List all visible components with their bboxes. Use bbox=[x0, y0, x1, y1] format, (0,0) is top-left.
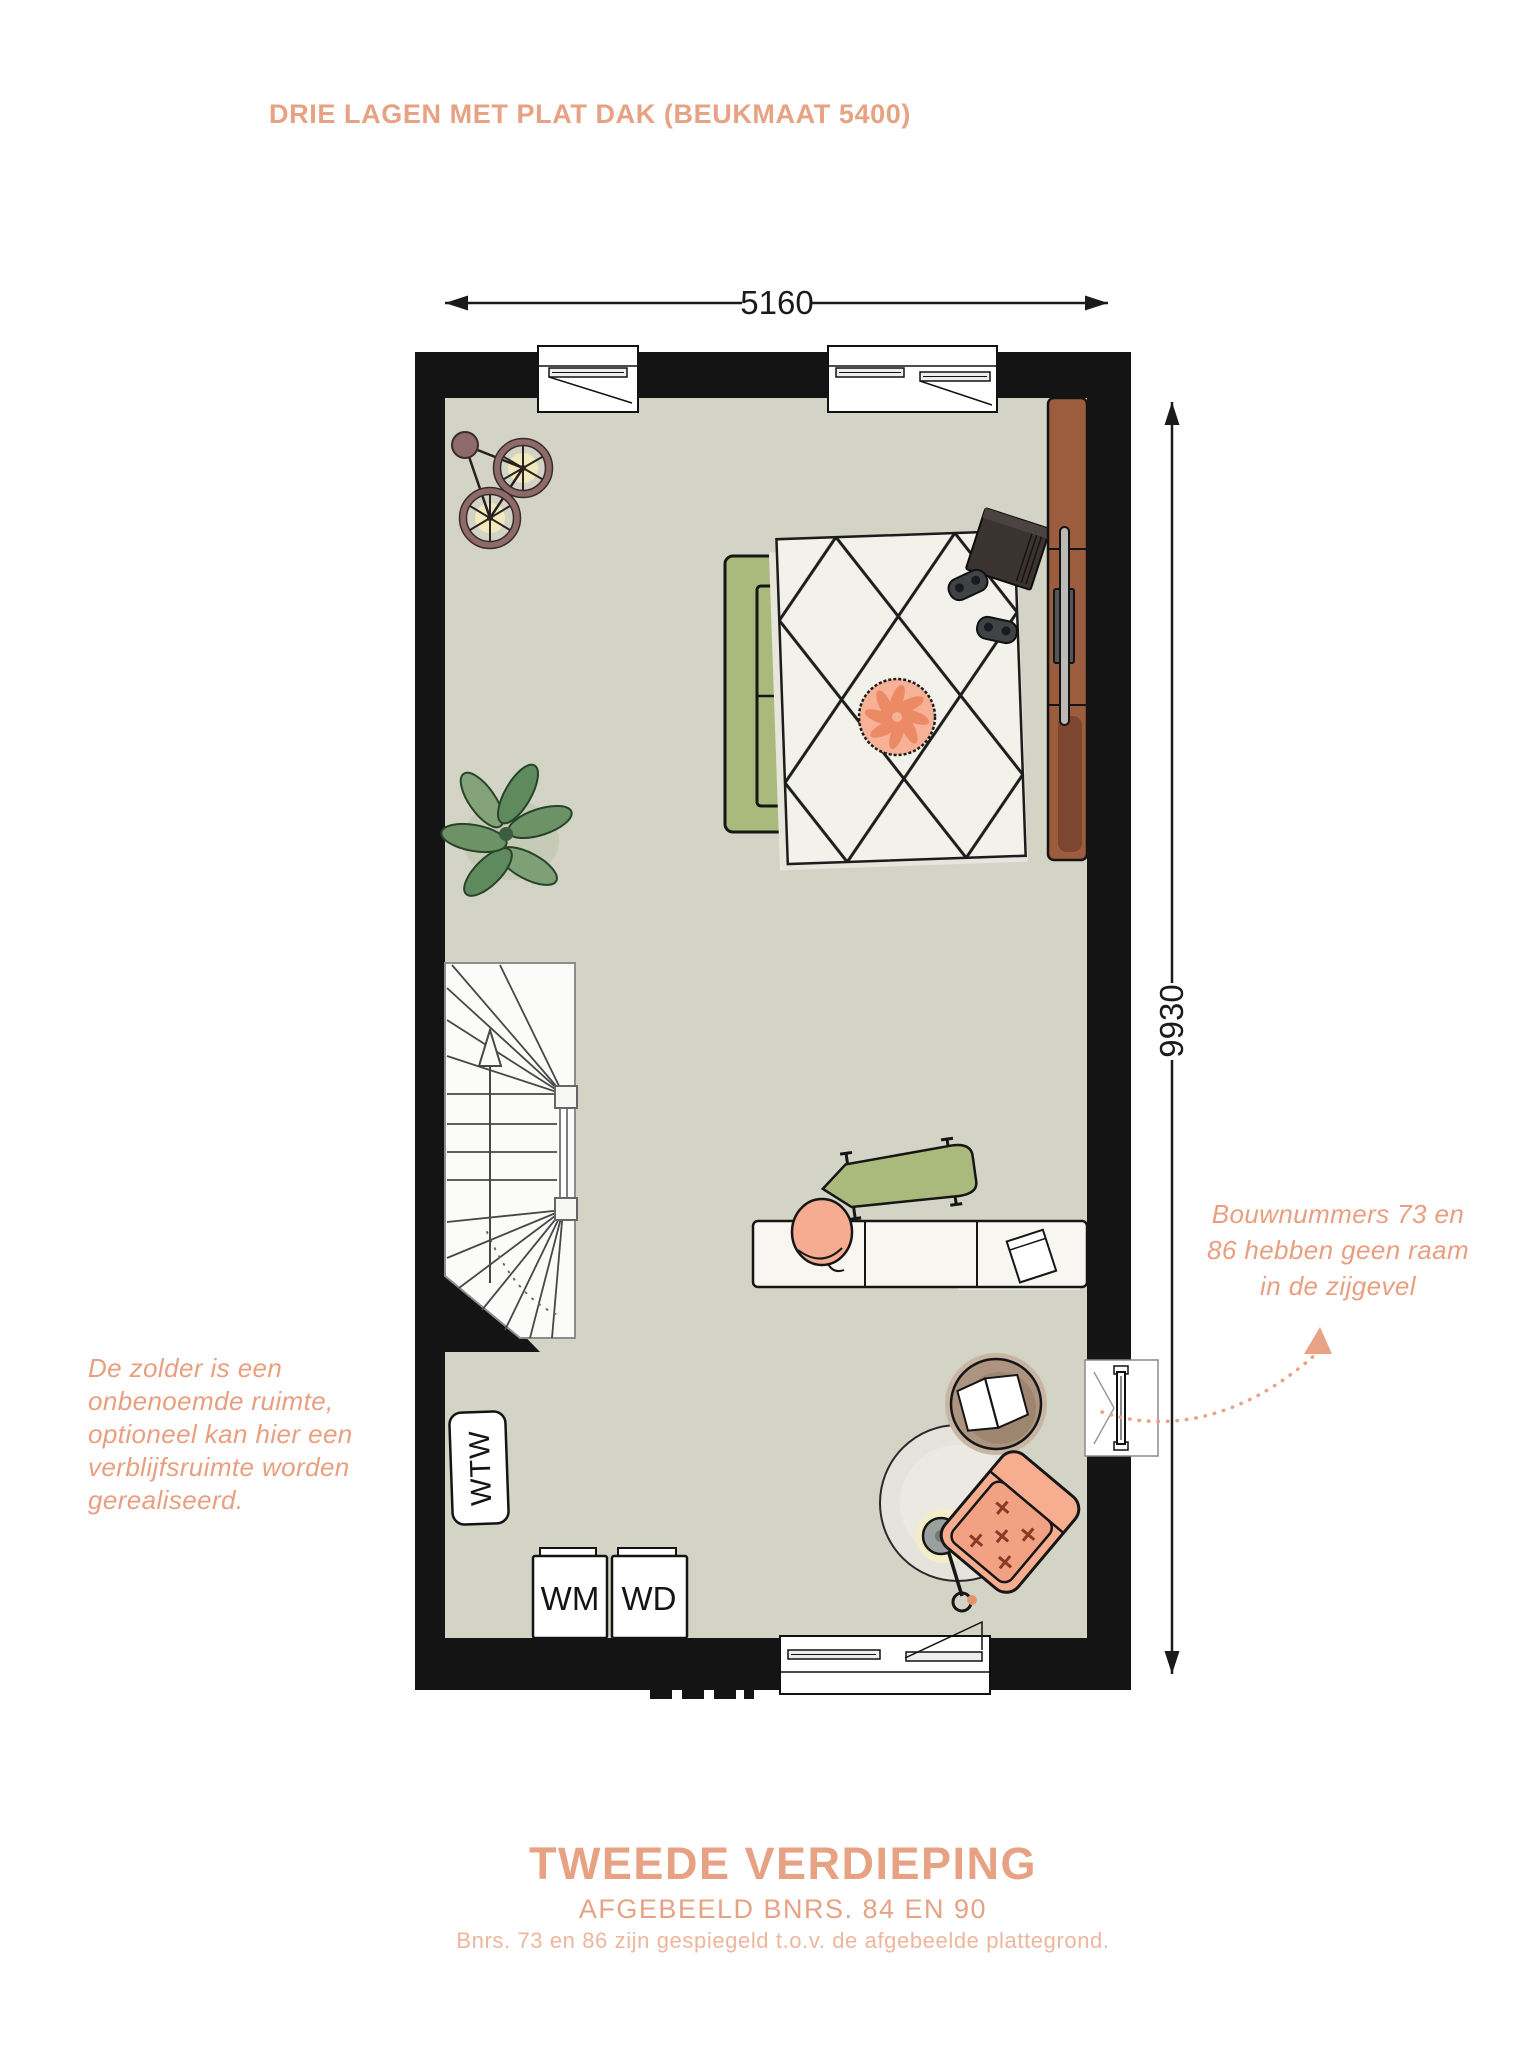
side-table bbox=[945, 1353, 1047, 1455]
note-attic: De zolder is een onbenoemde ruimte, opti… bbox=[88, 1352, 353, 1517]
wd-label: WD bbox=[622, 1580, 677, 1617]
note-line: in de zijgevel bbox=[1190, 1268, 1486, 1304]
wm-label: WM bbox=[541, 1580, 600, 1617]
arrow-right-icon bbox=[1085, 296, 1108, 311]
wall-right bbox=[1087, 352, 1131, 1688]
note-line: De zolder is een bbox=[88, 1352, 353, 1385]
round-pouf bbox=[859, 679, 935, 755]
stair-railing bbox=[560, 1108, 567, 1198]
floorplan-page: DRIE LAGEN MET PLAT DAK (BEUKMAAT 5400) bbox=[0, 0, 1536, 2048]
note-line: onbenoemde ruimte, bbox=[88, 1385, 353, 1418]
wall-dash-marks bbox=[650, 1690, 754, 1699]
dryer: WD bbox=[612, 1548, 687, 1638]
note-line: gerealiseerd. bbox=[88, 1484, 353, 1517]
bike-disc bbox=[452, 432, 478, 458]
note-line: 86 hebben geen raam bbox=[1190, 1232, 1486, 1268]
washing-machine: WM bbox=[533, 1548, 607, 1638]
note-window: Bouwnummers 73 en 86 hebben geen raam in… bbox=[1190, 1196, 1486, 1304]
arrow-up-icon bbox=[1165, 402, 1180, 425]
floor-subtitle: AFGEBEELD BNRS. 84 EN 90 bbox=[30, 1894, 1536, 1925]
window-top-left bbox=[538, 346, 638, 412]
tv-cabinet bbox=[1048, 398, 1087, 860]
window-top-right bbox=[828, 346, 997, 412]
dimension-width-label: 5160 bbox=[740, 284, 813, 321]
annotation-arrow-head bbox=[1304, 1327, 1332, 1354]
note-line: optioneel kan hier een bbox=[88, 1418, 353, 1451]
note-line: Bouwnummers 73 en bbox=[1190, 1196, 1486, 1232]
wtw-unit: WTW bbox=[449, 1411, 509, 1525]
floor-name: TWEEDE VERDIEPING bbox=[30, 1838, 1536, 1890]
dimension-width: 5160 bbox=[445, 284, 1108, 321]
newel-post bbox=[555, 1086, 577, 1108]
newel-post bbox=[555, 1198, 577, 1220]
note-line: verblijfsruimte worden bbox=[88, 1451, 353, 1484]
floorplan-drawing: 5160 9930 bbox=[0, 0, 1536, 2048]
wall-top bbox=[415, 352, 1131, 398]
floor-footnote: Bnrs. 73 en 86 zijn gespiegeld t.o.v. de… bbox=[30, 1928, 1536, 1954]
dimension-height: 9930 bbox=[1153, 402, 1190, 1674]
wtw-label: WTW bbox=[464, 1430, 499, 1507]
wall-left bbox=[415, 352, 445, 1688]
arrow-down-icon bbox=[1165, 1651, 1180, 1674]
arrow-left-icon bbox=[445, 296, 468, 311]
wall-bottom bbox=[415, 1638, 1131, 1690]
dimension-height-label: 9930 bbox=[1153, 984, 1190, 1057]
staircase bbox=[445, 963, 577, 1338]
window-side bbox=[1085, 1360, 1158, 1456]
